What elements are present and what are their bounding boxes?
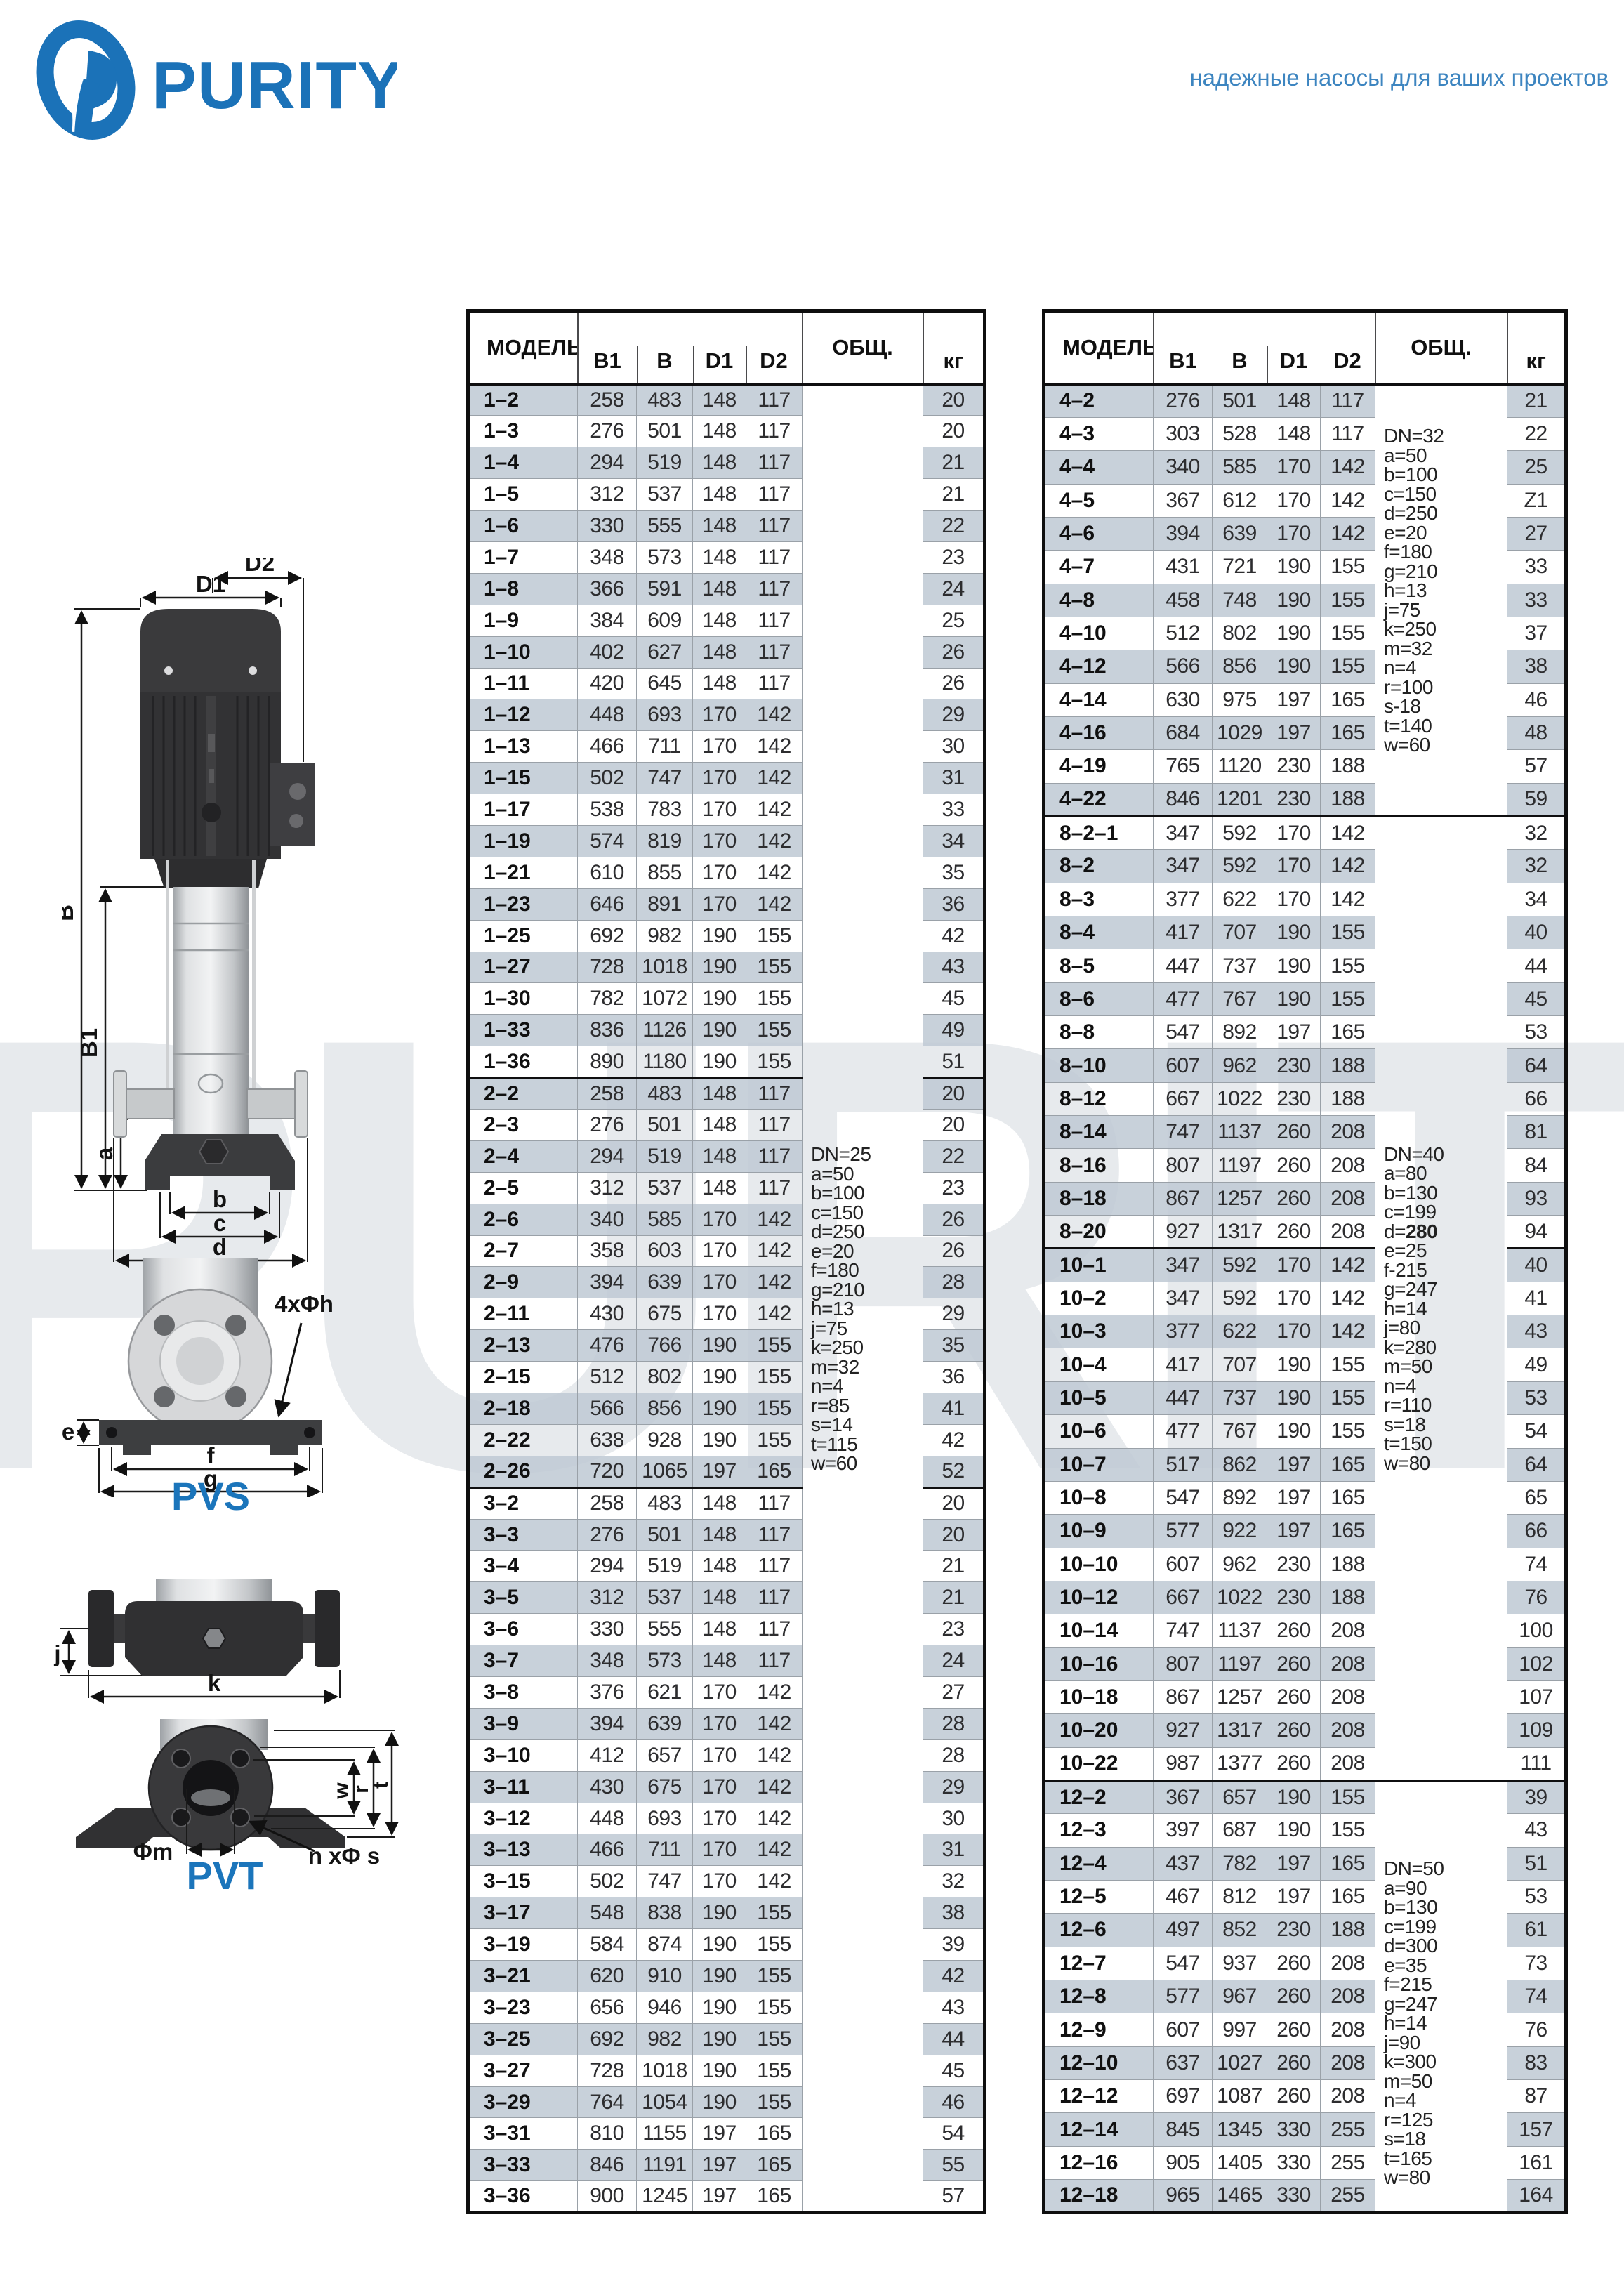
common-dimension-line: t=165 [1384, 2149, 1504, 2169]
weight-cell: 22 [1507, 417, 1566, 450]
dimension-cell: 208 [1321, 2013, 1375, 2046]
weight-cell: 30 [923, 731, 985, 763]
dimension-cell: 747 [1154, 1614, 1213, 1647]
dimension-cell: 417 [1154, 1348, 1213, 1381]
dimension-cell: 927 [1154, 1216, 1213, 1249]
weight-cell: 28 [923, 1267, 985, 1298]
dimension-cell: 155 [746, 1424, 803, 1456]
weight-cell: 42 [923, 1961, 985, 1992]
dimension-cell: 447 [1154, 1381, 1213, 1414]
model-cell: 3–15 [468, 1866, 578, 1897]
weight-cell: 27 [1507, 517, 1566, 550]
model-cell: 8–4 [1044, 916, 1154, 949]
dimensions-table-series-4-8-10-12: МОДЕЛЬB1BD1D2ОБЩ.кг4–2276501148117DN=32a… [1042, 309, 1568, 2214]
dimension-cell: 170 [1267, 1282, 1321, 1315]
dimension-cell: 1345 [1213, 2113, 1267, 2146]
dimension-cell: 155 [746, 2055, 803, 2086]
column-header-d2: D2 [1321, 311, 1375, 385]
dimension-cell: 117 [746, 511, 803, 542]
dimension-cell: 667 [1154, 1082, 1213, 1115]
dimension-cell: 867 [1154, 1182, 1213, 1215]
dimension-cell: 707 [1213, 1348, 1267, 1381]
model-cell: 4–5 [1044, 484, 1154, 517]
common-dimension-line: w=80 [1384, 2168, 1504, 2188]
dimension-cell: 170 [693, 1204, 746, 1235]
dimension-cell: 612 [1213, 484, 1267, 517]
model-cell: 8–3 [1044, 883, 1154, 916]
weight-cell: 53 [1507, 1016, 1566, 1049]
weight-cell: 21 [923, 447, 985, 479]
dimension-cell: 537 [637, 479, 693, 511]
weight-cell: 26 [923, 636, 985, 668]
dimension-cell: 190 [1267, 551, 1321, 584]
common-dimension-line: k=250 [811, 1338, 920, 1357]
dimension-cell: 260 [1267, 1182, 1321, 1215]
dimension-cell: 170 [693, 1708, 746, 1739]
model-cell: 3–8 [468, 1677, 578, 1709]
weight-cell: 53 [1507, 1880, 1566, 1913]
dimension-cell: 197 [1267, 683, 1321, 716]
model-cell: 10–22 [1044, 1747, 1154, 1780]
weight-cell: 26 [923, 1235, 985, 1267]
table-row: 4–2276501148117DN=32a=50b=100c=150d=250e… [1044, 384, 1566, 417]
dimension-cell: 190 [693, 1330, 746, 1362]
dimension-cell: 810 [578, 2118, 637, 2150]
dimension-cell: 330 [578, 511, 637, 542]
dimension-cell: 155 [1321, 617, 1375, 650]
weight-cell: 61 [1507, 1914, 1566, 1947]
dimension-cell: 170 [1267, 517, 1321, 550]
weight-cell: 66 [1507, 1515, 1566, 1548]
common-dimension-line: a=90 [1384, 1879, 1504, 1898]
model-cell: 3–13 [468, 1834, 578, 1866]
dimension-cell: 340 [1154, 451, 1213, 484]
model-cell: 1–15 [468, 763, 578, 794]
weight-cell: 94 [1507, 1216, 1566, 1249]
weight-cell: 36 [923, 1362, 985, 1393]
dimension-cell: 905 [1154, 2146, 1213, 2179]
dimension-cell: 148 [693, 1140, 746, 1172]
model-cell: 3–23 [468, 1992, 578, 2023]
dimension-cell: 852 [1213, 1914, 1267, 1947]
model-cell: 8–8 [1044, 1016, 1154, 1049]
dim-label-B: B [62, 905, 78, 921]
dimension-cell: 312 [578, 1172, 637, 1204]
dimension-cell: 766 [637, 1330, 693, 1362]
dimension-cell: 142 [1321, 451, 1375, 484]
weight-cell: 45 [923, 2055, 985, 2086]
dimension-cell: 458 [1154, 584, 1213, 617]
dimension-cell: 190 [693, 983, 746, 1015]
common-dimension-line: g=210 [811, 1280, 920, 1300]
dimension-cell: 117 [746, 416, 803, 447]
dimension-cell: 737 [1213, 1381, 1267, 1414]
dimension-cell: 190 [693, 952, 746, 983]
purity-logo: PURITY [18, 20, 397, 140]
model-cell: 4–4 [1044, 451, 1154, 484]
model-cell: 10–8 [1044, 1481, 1154, 1514]
dimension-cell: 891 [637, 888, 693, 920]
dimension-cell: 142 [746, 731, 803, 763]
dimension-cell: 170 [693, 888, 746, 920]
dimension-cell: 1137 [1213, 1614, 1267, 1647]
dimension-cell: 927 [1154, 1714, 1213, 1747]
weight-cell: 48 [1507, 716, 1566, 749]
dimension-cell: 117 [746, 1614, 803, 1645]
dimension-cell: 190 [693, 1424, 746, 1456]
dim-label-b: b [213, 1186, 227, 1212]
datasheet-page: PURITY PURITY надежные насосы для ваших … [0, 0, 1624, 2276]
dimension-cell: 260 [1267, 1714, 1321, 1747]
common-dimension-line: j=75 [1384, 600, 1504, 620]
dimension-cell: 148 [693, 1551, 746, 1582]
dimension-cell: 188 [1321, 783, 1375, 816]
dimension-cell: 260 [1267, 1947, 1321, 1980]
weight-cell: 23 [923, 1172, 985, 1204]
dimension-cell: 197 [693, 2181, 746, 2213]
dimension-cell: 155 [1321, 1415, 1375, 1448]
dimension-cell: 987 [1154, 1747, 1213, 1780]
dimension-cell: 230 [1267, 1082, 1321, 1115]
dim-label-d: d [213, 1234, 227, 1260]
model-cell: 2–11 [468, 1298, 578, 1330]
common-dimension-line: k=300 [1384, 2052, 1504, 2072]
common-dimension-line: d=300 [1384, 1936, 1504, 1956]
common-dimension-line: n=4 [1384, 2091, 1504, 2110]
weight-cell: 34 [1507, 883, 1566, 916]
common-dimension-line: DN=40 [1384, 1145, 1504, 1164]
dimension-cell: 197 [693, 2118, 746, 2150]
model-cell: 3–4 [468, 1551, 578, 1582]
weight-cell: 41 [1507, 1282, 1566, 1315]
dimension-cell: 197 [1267, 1880, 1321, 1913]
model-cell: 4–8 [1044, 584, 1154, 617]
weight-cell: 33 [923, 794, 985, 826]
dimension-cell: 607 [1154, 2013, 1213, 2046]
weight-cell: 49 [923, 1015, 985, 1046]
column-header-d1: D1 [1267, 311, 1321, 385]
dimension-cell: 190 [693, 1961, 746, 1992]
dimension-cell: 483 [637, 1487, 693, 1519]
dimension-cell: 720 [578, 1456, 637, 1487]
weight-cell: 74 [1507, 1548, 1566, 1581]
common-dimension-line: f=215 [1384, 1975, 1504, 1994]
dimension-cell: 430 [578, 1771, 637, 1803]
model-cell: 1–7 [468, 541, 578, 573]
dimension-cell: 501 [1213, 384, 1267, 417]
dimension-cell: 394 [1154, 517, 1213, 550]
dimension-cell: 592 [1213, 1282, 1267, 1315]
suction-flange [114, 1071, 126, 1137]
dimension-cell: 394 [578, 1267, 637, 1298]
dimension-cell: 170 [693, 857, 746, 888]
dimension-cell: 855 [637, 857, 693, 888]
dimension-cell: 190 [693, 1929, 746, 1961]
dimension-cell: 1022 [1213, 1082, 1267, 1115]
model-cell: 3–7 [468, 1645, 578, 1677]
model-cell: 3–17 [468, 1897, 578, 1929]
common-dimensions-block: DN=40a=80b=130c=199d=280e=25f-215g=247h=… [1384, 1145, 1504, 1473]
dimension-cell: 165 [746, 2150, 803, 2181]
dimension-cell: 190 [1267, 949, 1321, 982]
dimension-cell: 802 [637, 1362, 693, 1393]
dimension-cell: 155 [746, 1961, 803, 1992]
model-cell: 2–3 [468, 1109, 578, 1140]
dimension-cell: 155 [1321, 1780, 1375, 1813]
dimension-cell: 693 [637, 1803, 693, 1834]
dimension-cell: 548 [578, 1897, 637, 1929]
dimension-cell: 1022 [1213, 1581, 1267, 1614]
model-cell: 8–6 [1044, 982, 1154, 1015]
dimension-cell: 117 [1321, 417, 1375, 450]
dimension-cell: 747 [1154, 1116, 1213, 1149]
dimension-cell: 148 [693, 384, 746, 416]
dimension-cell: 260 [1267, 2080, 1321, 2113]
model-cell: 2–18 [468, 1393, 578, 1425]
common-dimension-line: w=80 [1384, 1454, 1504, 1473]
dimension-cell: 255 [1321, 2180, 1375, 2213]
dimension-cell: 577 [1154, 1980, 1213, 2013]
weight-cell: 43 [1507, 1315, 1566, 1348]
model-cell: 4–2 [1044, 384, 1154, 417]
weight-cell: 25 [923, 605, 985, 636]
weight-cell: 34 [923, 825, 985, 857]
dimension-cell: 148 [693, 1582, 746, 1614]
dim-label-4xPhih: 4xΦh [275, 1291, 334, 1317]
dimension-cell: 170 [693, 1267, 746, 1298]
dimension-cell: 592 [1213, 850, 1267, 883]
dimension-cell: 639 [637, 1708, 693, 1739]
model-cell: 12–10 [1044, 2046, 1154, 2079]
dimension-cell: 155 [746, 2023, 803, 2055]
weight-cell: 24 [923, 1645, 985, 1677]
dimension-cell: 170 [693, 1298, 746, 1330]
weight-cell: 21 [923, 479, 985, 511]
dimension-cell: 170 [693, 1739, 746, 1771]
dimension-cell: 566 [578, 1393, 637, 1425]
dimension-cell: 1137 [1213, 1116, 1267, 1149]
dimension-cell: 208 [1321, 1149, 1375, 1182]
common-dimension-line: r=100 [1384, 678, 1504, 697]
common-dimension-line: a=50 [811, 1164, 920, 1184]
dimension-cell: 627 [637, 636, 693, 668]
dimension-cell: 330 [1267, 2113, 1321, 2146]
pvt-left-flange [88, 1590, 114, 1667]
dimension-cell: 190 [693, 1897, 746, 1929]
dimension-cell: 170 [1267, 816, 1321, 849]
dimension-cell: 165 [1321, 1481, 1375, 1514]
model-cell: 1–4 [468, 447, 578, 479]
model-cell: 12–18 [1044, 2180, 1154, 2213]
dimension-cell: 197 [1267, 1515, 1321, 1548]
dimension-cell: 767 [1213, 1415, 1267, 1448]
common-dimension-line: t=115 [811, 1435, 920, 1454]
dimension-cell: 585 [1213, 451, 1267, 484]
dimension-cell: 188 [1321, 1548, 1375, 1581]
dimension-cell: 142 [746, 1771, 803, 1803]
weight-cell: 28 [923, 1739, 985, 1771]
weight-cell: 22 [923, 511, 985, 542]
dimension-cell: 117 [746, 447, 803, 479]
common-dimension-line: j=80 [1384, 1318, 1504, 1338]
dimension-cell: 260 [1267, 1614, 1321, 1647]
common-dimension-line: m=32 [811, 1357, 920, 1377]
weight-cell: 31 [923, 763, 985, 794]
pvt-right-flange [315, 1590, 340, 1667]
dimension-cell: 330 [578, 1614, 637, 1645]
dimension-cell: 645 [637, 668, 693, 699]
dimension-cell: 1120 [1213, 750, 1267, 783]
model-cell: 10–20 [1044, 1714, 1154, 1747]
weight-cell: 41 [923, 1393, 985, 1425]
dimension-cell: 294 [578, 447, 637, 479]
dimension-cell: 501 [637, 1519, 693, 1551]
dimension-cell: 260 [1267, 2046, 1321, 2079]
column-header-model: МОДЕЛЬ [468, 311, 578, 385]
dimension-cell: 165 [1321, 1847, 1375, 1880]
dimension-cell: 190 [1267, 1814, 1321, 1847]
dimension-cell: 962 [1213, 1548, 1267, 1581]
dimension-cell: 303 [1154, 417, 1213, 450]
dim-label-D2: D2 [245, 558, 275, 576]
dimension-cell: 1018 [637, 2055, 693, 2086]
dimension-cell: 711 [637, 731, 693, 763]
dimension-cell: 607 [1154, 1049, 1213, 1082]
dim-label-k: k [208, 1670, 221, 1696]
dimension-cell: 276 [578, 1109, 637, 1140]
dimension-cell: 260 [1267, 1647, 1321, 1680]
model-cell: 1–17 [468, 794, 578, 826]
purity-logo-icon [32, 20, 139, 140]
dimension-cell: 639 [1213, 517, 1267, 550]
common-dimension-line: r=110 [1384, 1395, 1504, 1415]
dimension-cell: 197 [1267, 1016, 1321, 1049]
dimension-cell: 170 [693, 1677, 746, 1709]
model-cell: 8–2 [1044, 850, 1154, 883]
dimension-cell: 208 [1321, 1182, 1375, 1215]
dimension-cell: 258 [578, 1487, 637, 1519]
dimension-cell: 148 [693, 1172, 746, 1204]
dimension-cell: 170 [693, 1866, 746, 1897]
dimension-cell: 170 [1267, 451, 1321, 484]
dim-label-e: e [62, 1419, 74, 1445]
dimension-cell: 165 [746, 1456, 803, 1487]
common-dimension-line: s-18 [1384, 697, 1504, 716]
weight-cell: 20 [923, 1487, 985, 1519]
dimension-cell: 609 [637, 605, 693, 636]
model-cell: 2–22 [468, 1424, 578, 1456]
weight-cell: 31 [923, 1834, 985, 1866]
weight-cell: 20 [923, 1519, 985, 1551]
dimension-cell: 190 [693, 1992, 746, 2023]
dimension-cell: 1027 [1213, 2046, 1267, 2079]
common-dimension-line: j=75 [811, 1319, 920, 1338]
dimension-cell: 190 [1267, 1780, 1321, 1813]
dimension-cell: 170 [1267, 1249, 1321, 1282]
weight-cell: 54 [1507, 1415, 1566, 1448]
weight-cell: 29 [923, 699, 985, 731]
dimension-cell: 165 [1321, 1880, 1375, 1913]
dimension-cell: 230 [1267, 1548, 1321, 1581]
dimension-cell: 922 [1213, 1515, 1267, 1548]
model-cell: 12–12 [1044, 2080, 1154, 2113]
dimension-cell: 155 [1321, 916, 1375, 949]
dimension-cell: 862 [1213, 1448, 1267, 1481]
dimension-cell: 155 [746, 1929, 803, 1961]
common-dimension-line: h=13 [1384, 581, 1504, 600]
dimension-cell: 117 [746, 1140, 803, 1172]
dimension-cell: 190 [693, 2086, 746, 2118]
dimension-cell: 846 [578, 2150, 637, 2181]
dimension-cell: 208 [1321, 1980, 1375, 2013]
dimension-cell: 501 [637, 1109, 693, 1140]
dimension-cell: 142 [1321, 816, 1375, 849]
dimension-cell: 170 [693, 763, 746, 794]
dimension-cell: 190 [1267, 617, 1321, 650]
dimension-cell: 519 [637, 1140, 693, 1172]
dimension-cell: 165 [1321, 1515, 1375, 1548]
weight-cell: 46 [1507, 683, 1566, 716]
dimension-cell: 142 [746, 857, 803, 888]
dimension-cell: 477 [1154, 1415, 1213, 1448]
dimension-cell: 747 [637, 1866, 693, 1897]
dimension-cell: 1201 [1213, 783, 1267, 816]
common-dimension-line: g=247 [1384, 1280, 1504, 1299]
common-dimension-line: j=90 [1384, 2033, 1504, 2053]
common-dimension-line: DN=50 [1384, 1859, 1504, 1879]
column-header-d1: D1 [693, 311, 746, 385]
model-cell: 3–33 [468, 2150, 578, 2181]
common-dimension-line: d=280 [1384, 1222, 1504, 1242]
weight-cell: 55 [923, 2150, 985, 2181]
table-row: 1–2258483148117DN=25a=50b=100c=150d=250e… [468, 384, 985, 416]
dimension-cell: 142 [746, 1267, 803, 1298]
dimension-cell: 1197 [1213, 1149, 1267, 1182]
dim-label-j: j [53, 1640, 60, 1666]
header-row: МОДЕЛЬB1BD1D2ОБЩ.кг [1044, 311, 1566, 385]
dimension-cell: 170 [693, 731, 746, 763]
dimension-cell: 592 [1213, 816, 1267, 849]
dimension-cell: 838 [637, 1897, 693, 1929]
dimension-cell: 692 [578, 2023, 637, 2055]
dimension-cell: 142 [746, 1298, 803, 1330]
dimension-cell: 117 [746, 1172, 803, 1204]
dimension-cell: 312 [578, 1582, 637, 1614]
dimension-cell: 197 [1267, 1448, 1321, 1481]
weight-cell: 111 [1507, 1747, 1566, 1780]
dimension-cell: 148 [693, 1519, 746, 1551]
dimension-cell: 276 [578, 416, 637, 447]
model-cell: 12–4 [1044, 1847, 1154, 1880]
dim-label-B1: B1 [76, 1028, 102, 1058]
model-cell: 3–29 [468, 2086, 578, 2118]
dimension-cell: 188 [1321, 1082, 1375, 1115]
dimension-cell: 148 [1267, 384, 1321, 417]
model-cell: 8–5 [1044, 949, 1154, 982]
dimension-cell: 1317 [1213, 1714, 1267, 1747]
dimension-cell: 155 [746, 1330, 803, 1362]
model-cell: 2–4 [468, 1140, 578, 1172]
weight-cell: 44 [923, 2023, 985, 2055]
weight-cell: 102 [1507, 1647, 1566, 1680]
weight-cell: 66 [1507, 1082, 1566, 1115]
common-dimensions-cell: DN=50a=90b=130c=199d=300e=35f=215g=247h=… [1375, 1780, 1507, 2212]
dimension-cell: 637 [1154, 2046, 1213, 2079]
table-row: 12–2367657190155DN=50a=90b=130c=199d=300… [1044, 1780, 1566, 1813]
dimension-cell: 142 [746, 763, 803, 794]
dimension-cell: 155 [1321, 1348, 1375, 1381]
dimension-cell: 117 [746, 384, 803, 416]
